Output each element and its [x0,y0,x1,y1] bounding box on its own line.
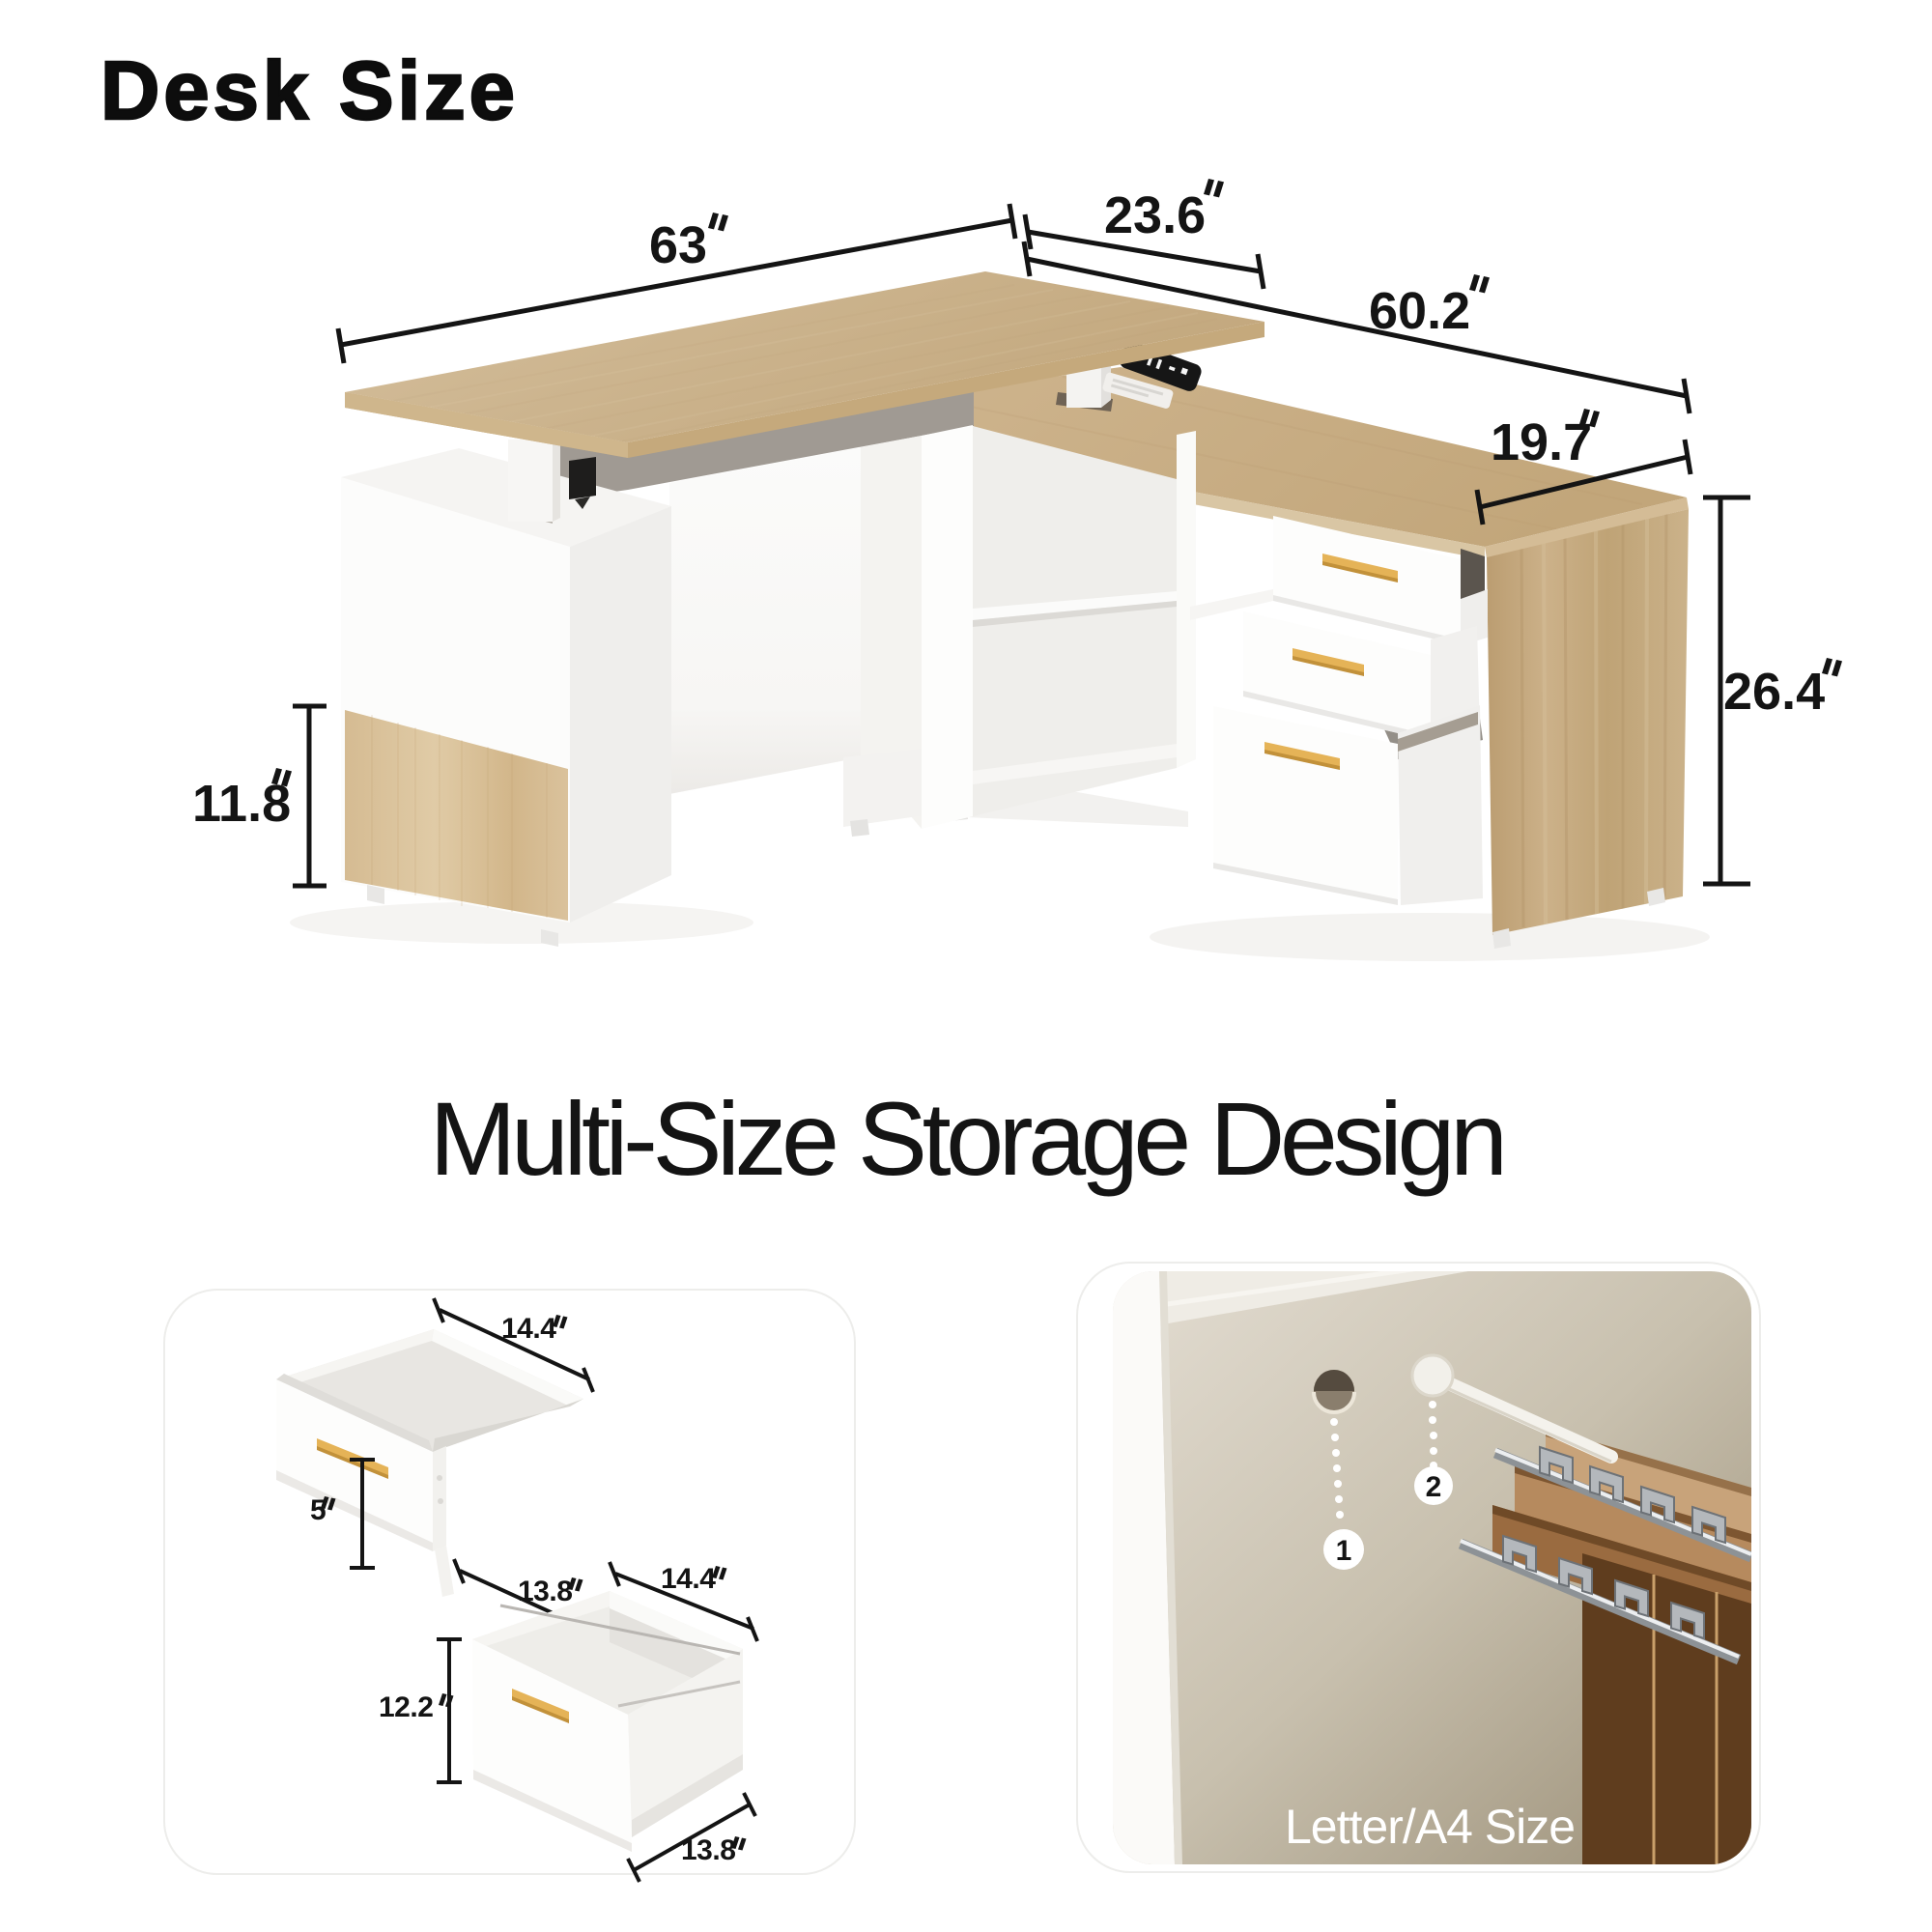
svg-text:13.8: 13.8 [681,1834,735,1866]
svg-text:63: 63 [649,216,707,274]
svg-text:Letter/A4 Size: Letter/A4 Size [1285,1800,1575,1854]
svg-text:5: 5 [310,1494,326,1526]
svg-text:14.4: 14.4 [501,1313,556,1345]
svg-text:1: 1 [1336,1535,1352,1567]
svg-text:2: 2 [1426,1471,1442,1503]
svg-text:Desk Size: Desk Size [100,45,519,137]
svg-text:60.2: 60.2 [1369,282,1470,340]
svg-text:13.8: 13.8 [518,1576,572,1607]
svg-text:Multi-Size Storage Design: Multi-Size Storage Design [429,1080,1502,1197]
svg-text:14.4: 14.4 [661,1563,716,1595]
svg-text:26.4: 26.4 [1723,663,1825,721]
svg-text:23.6: 23.6 [1104,186,1206,244]
svg-text:12.2: 12.2 [379,1691,433,1723]
svg-text:19.7: 19.7 [1491,413,1592,471]
